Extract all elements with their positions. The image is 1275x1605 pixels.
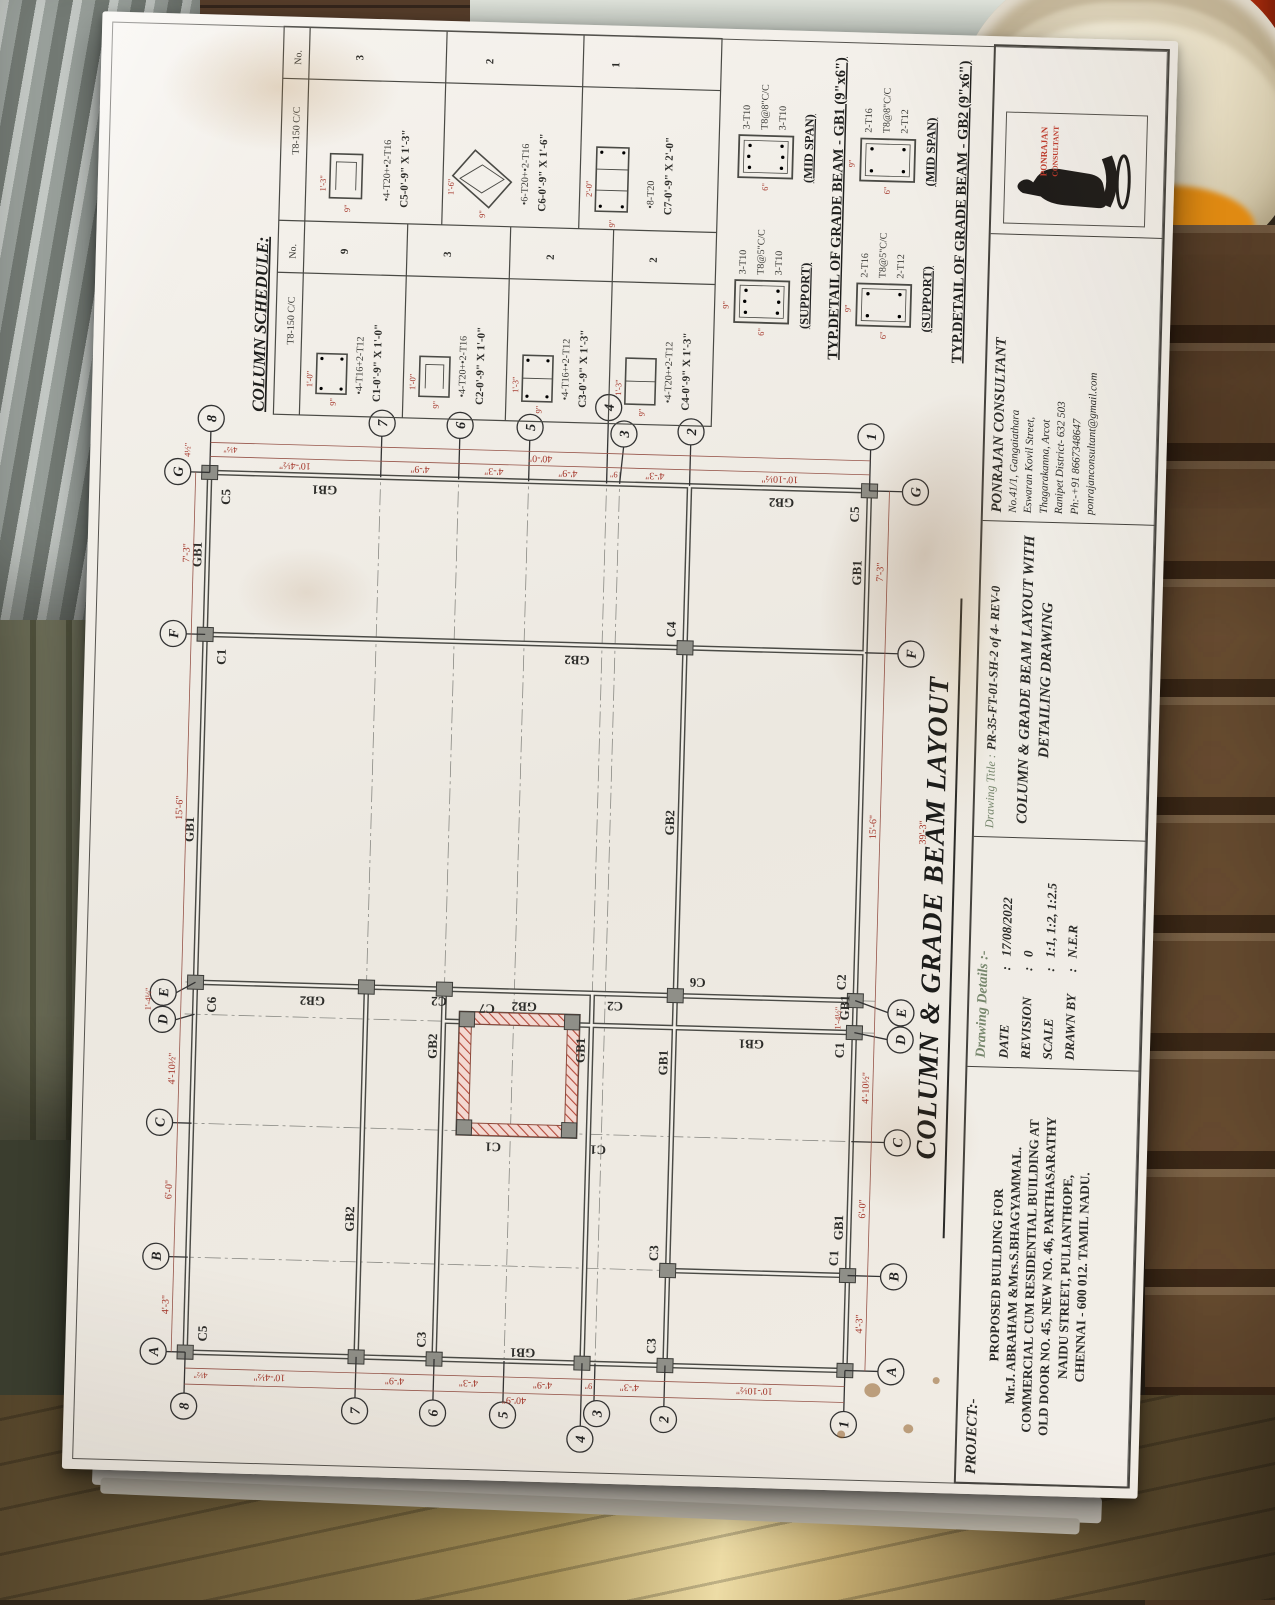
project-label: PROJECT:- [963,1398,981,1474]
drawing-title-cell: Drawing Title : PR-35-FT-01-SH-2 of 4- R… [974,520,1155,841]
details-heading: Drawing Details :- [974,845,996,1058]
details-value: 1:1, 1:2, 1:2.5 [1043,883,1061,958]
drawing-sheet: GB1 GB1 GB2 GB2 GB1 GB1 GB2 GB1 GB1 GB1 … [62,11,1178,1498]
details-value: N.E.R [1065,925,1082,959]
details-value: 0 [1021,950,1037,957]
project-cell: PROJECT:- PROPOSED BUILDING FOR Mr.J. AB… [956,1065,1140,1486]
logo-cell: PONRAJAN CONSULTANT [991,46,1168,237]
logo-text-1: PONRAJAN [1038,127,1049,177]
consultant-cell: PONRAJAN CONSULTANT No.41/1, Gangaiathar… [983,233,1163,525]
drawing-number: PR-35-FT-01-SH-2 of 4- REV-0 [984,586,1003,751]
details-key: REVISION [1018,971,1036,1059]
drawing-details-cell: Drawing Details :- DATE:17/08/2022 REVIS… [967,836,1145,1070]
details-key: DRAWN BY [1062,972,1080,1060]
drawing-sheet-paper: GB1 GB1 GB2 GB2 GB1 GB1 GB2 GB1 GB1 GB1 … [62,11,1178,1498]
details-key: DATE [996,970,1014,1058]
details-value: 17/08/2022 [999,897,1017,957]
photo-of-structural-drawing: { "schedule": { "title": "COLUMN SCHEDUL… [0,0,1275,1600]
consultant-logo [1003,111,1148,227]
details-key: SCALE [1040,971,1058,1059]
logo-figure-icon [1004,114,1144,226]
drawing-title-label: Drawing Title : [982,754,998,828]
logo-text-2: CONSULTANT [1050,126,1060,177]
